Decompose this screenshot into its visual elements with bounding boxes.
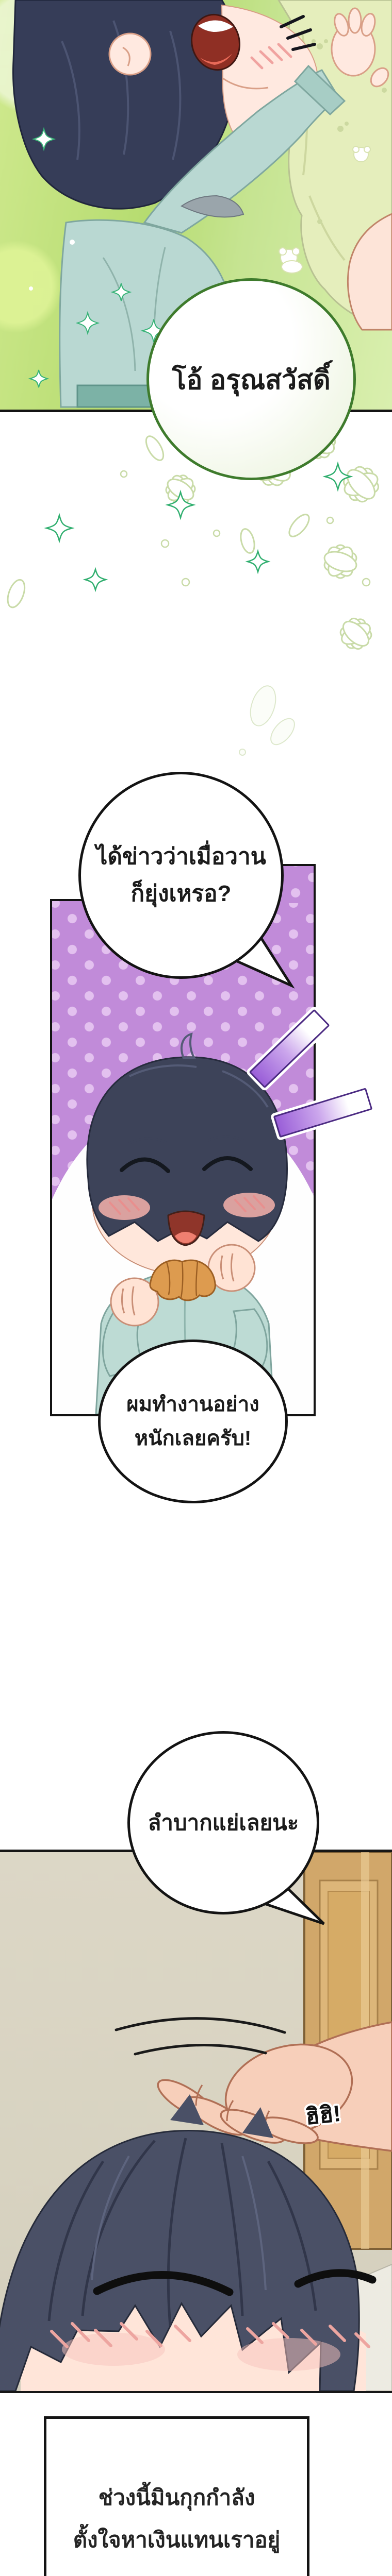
narration1-line1: ช่วงนี้มินกุกกำลัง xyxy=(99,2477,255,2519)
speech-bubble-answer: ผมทำงานอย่าง หนักเลยครับ! xyxy=(98,1340,288,1503)
speech-bubble-sympathy: ลำบากแย่เลยนะ xyxy=(127,1731,319,1914)
answer-line1: ผมทำงานอย่าง xyxy=(126,1387,259,1421)
greeting-text: โอ้ อรุณสวัสดิ์ xyxy=(172,358,330,401)
faint-petals xyxy=(239,683,299,755)
answer-line2: หนักเลยครับ! xyxy=(135,1421,252,1455)
baby-ear xyxy=(109,33,151,75)
speech-bubble-greeting: โอ้ อรุณสวัสดิ์ xyxy=(146,278,356,480)
pat-motion-lines xyxy=(116,2019,285,2054)
sympathy-text: ลำบากแย่เลยนะ xyxy=(148,1806,299,1840)
narration-box-1: ช่วงนี้มินกุกกำลัง ตั้งใจหาเงินแทนเราอยู… xyxy=(44,2416,309,2576)
question-line1: ได้ข่าวว่าเมื่อวาน xyxy=(96,838,266,875)
speech-bubble-question: ได้ข่าวว่าเมื่อวาน ก็ยุ่งเหรอ? xyxy=(78,772,284,979)
giggle-text: ฮิฮิ! xyxy=(304,2101,342,2130)
question-line2: ก็ยุ่งเหรอ? xyxy=(131,875,232,912)
croissant xyxy=(150,1260,215,1300)
webtoon-page: โอ้ อรุณสวัสดิ์ ได้ข่าวว่าเมื่อวาน ก็ยุ่… xyxy=(0,0,392,2576)
narration1-line2: ตั้งใจหาเงินแทนเราอยู่ xyxy=(73,2519,281,2561)
